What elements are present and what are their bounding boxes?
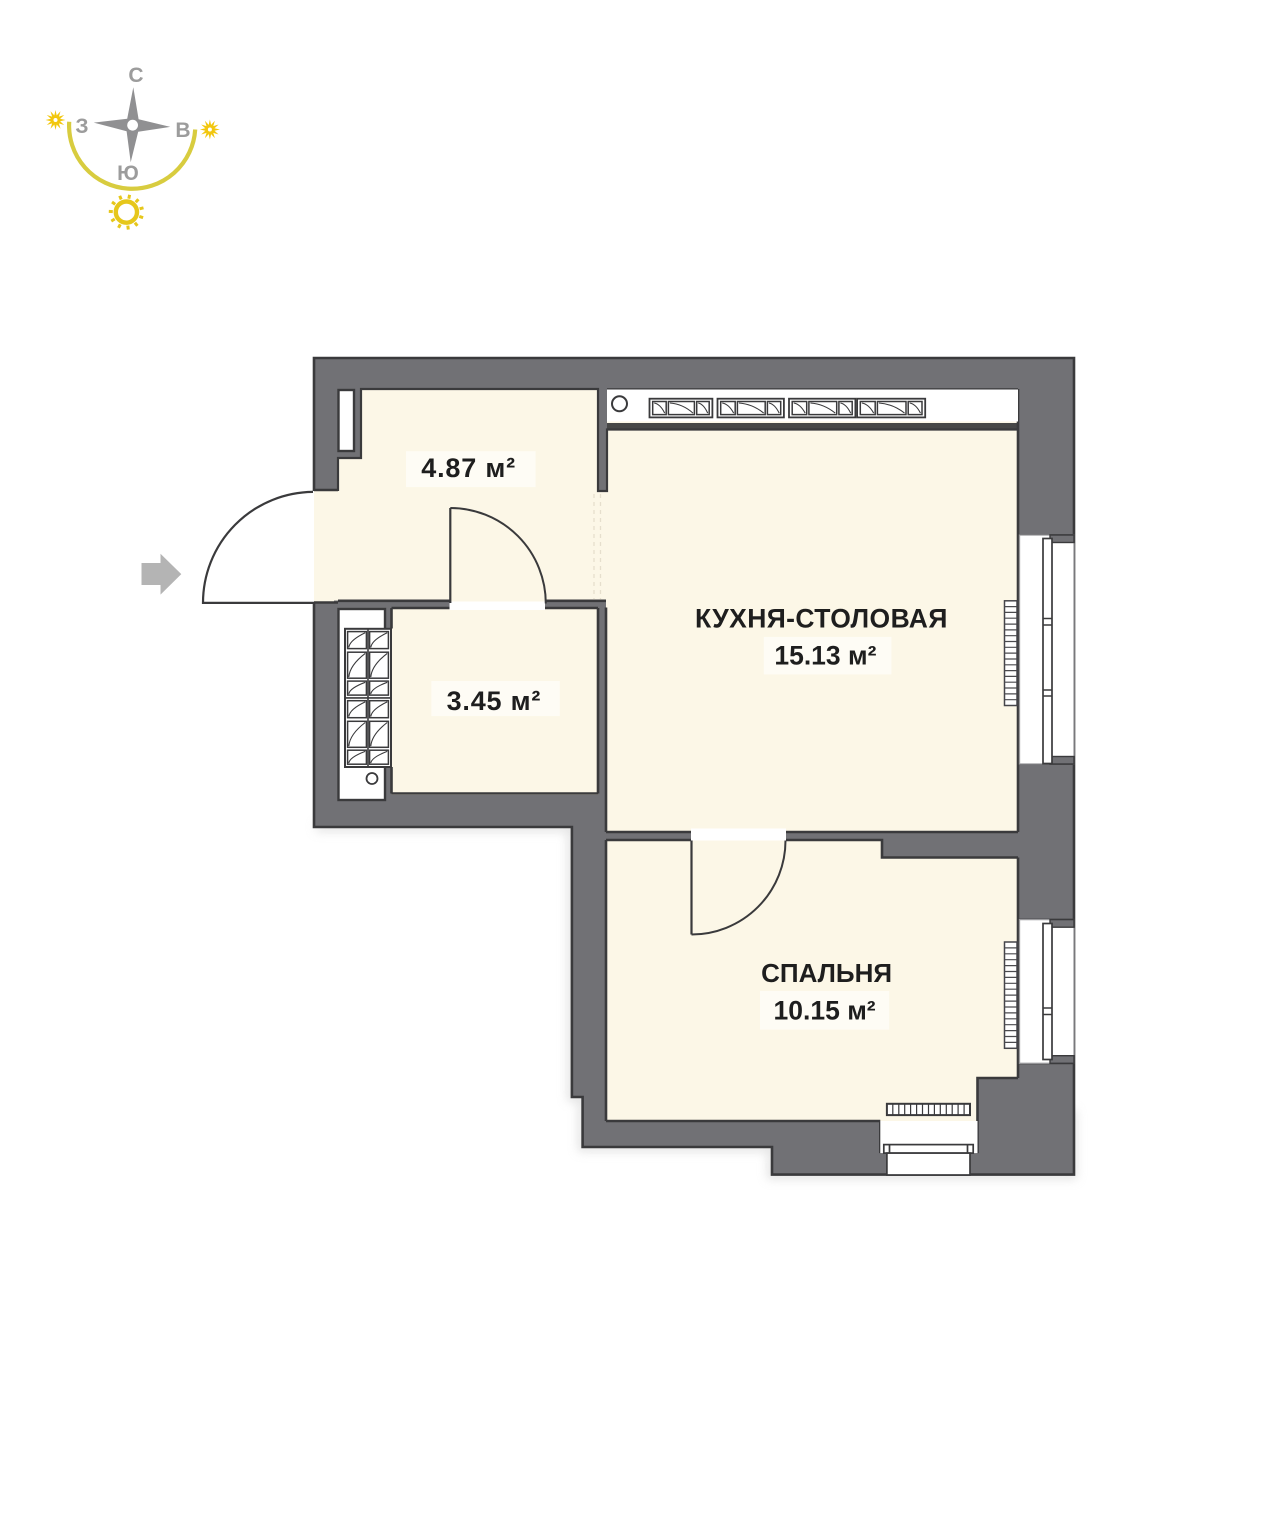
svg-text:КУХНЯ-СТОЛОВАЯ: КУХНЯ-СТОЛОВАЯ — [695, 604, 948, 634]
svg-text:СПАЛЬНЯ: СПАЛЬНЯ — [761, 958, 892, 988]
svg-text:15.13 м²: 15.13 м² — [774, 641, 876, 671]
svg-text:В: В — [175, 119, 190, 142]
svg-text:Ю: Ю — [117, 162, 139, 185]
svg-text:С: С — [128, 64, 143, 87]
svg-text:З: З — [75, 115, 88, 138]
svg-text:4.87 м²: 4.87 м² — [421, 453, 516, 483]
svg-text:10.15 м²: 10.15 м² — [774, 996, 876, 1026]
svg-text:3.45 м²: 3.45 м² — [447, 686, 542, 716]
